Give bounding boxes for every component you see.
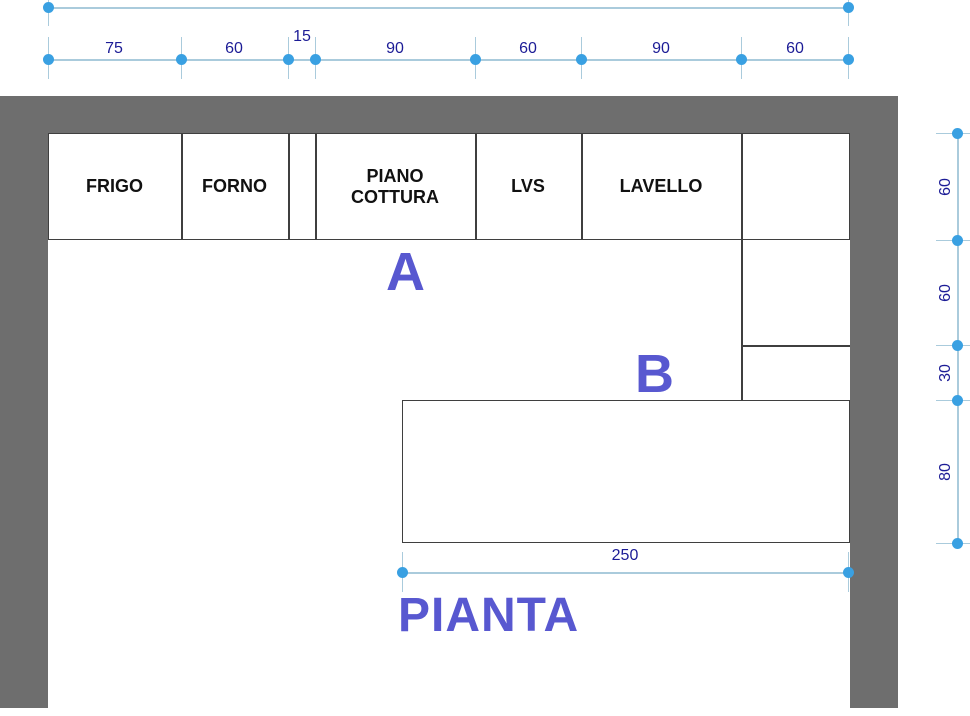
dim-line-top-segments: [48, 59, 848, 61]
dim-label-right-60: 60: [938, 263, 954, 323]
dim-label-90: 90: [631, 41, 691, 57]
wall-right: [850, 96, 898, 708]
island-outline: [402, 400, 850, 543]
dim-line-bottom-250: [402, 572, 848, 574]
wall-top: [0, 96, 898, 133]
plan-title: PIANTA: [398, 592, 579, 640]
dim-line-right-chain: [957, 133, 959, 543]
dim-dot: [952, 235, 963, 246]
dim-label-60: 60: [204, 41, 264, 57]
dim-dot: [843, 567, 854, 578]
dim-label-15: 15: [272, 29, 332, 45]
dim-label-right-60: 60: [938, 157, 954, 217]
column-left-edge: [741, 240, 743, 400]
dim-label-right-30: 30: [938, 343, 954, 403]
cabinet-frigo: FRIGO: [48, 133, 181, 240]
dim-label-90: 90: [365, 41, 425, 57]
dim-dot: [576, 54, 587, 65]
dim-label-60: 60: [498, 41, 558, 57]
dim-dot: [470, 54, 481, 65]
dim-dot: [310, 54, 321, 65]
dim-dot: [843, 54, 854, 65]
kitchen-plan-drawing: 450 75 60 15 90 60 90 60 FRIGO FORNO PIA…: [0, 0, 970, 716]
dim-label-60: 60: [765, 41, 825, 57]
cabinet-divider: [741, 133, 743, 240]
dim-dot: [397, 567, 408, 578]
cabinet-piano-cottura: PIANO COTTURA: [315, 133, 475, 240]
cabinet-lvs: LVS: [475, 133, 581, 240]
dim-dot: [952, 128, 963, 139]
dim-dot: [736, 54, 747, 65]
dim-dot: [43, 54, 54, 65]
dim-line-total-450: [48, 7, 848, 9]
cabinet-forno: FORNO: [181, 133, 288, 240]
dim-label-250: 250: [595, 548, 655, 564]
cabinet-lavello: LAVELLO: [581, 133, 741, 240]
cabinet-divider: [288, 133, 290, 240]
column-divider: [741, 345, 850, 347]
wall-left: [0, 96, 48, 708]
dim-dot: [176, 54, 187, 65]
dim-dot: [952, 538, 963, 549]
dim-dot: [283, 54, 294, 65]
dim-dot: [43, 2, 54, 13]
dim-label-total: 450: [416, 0, 476, 4]
zone-label-b: B: [635, 347, 674, 401]
dim-dot: [843, 2, 854, 13]
dim-label-right-80: 80: [938, 442, 954, 502]
dim-label-75: 75: [84, 41, 144, 57]
zone-label-a: A: [386, 245, 425, 299]
